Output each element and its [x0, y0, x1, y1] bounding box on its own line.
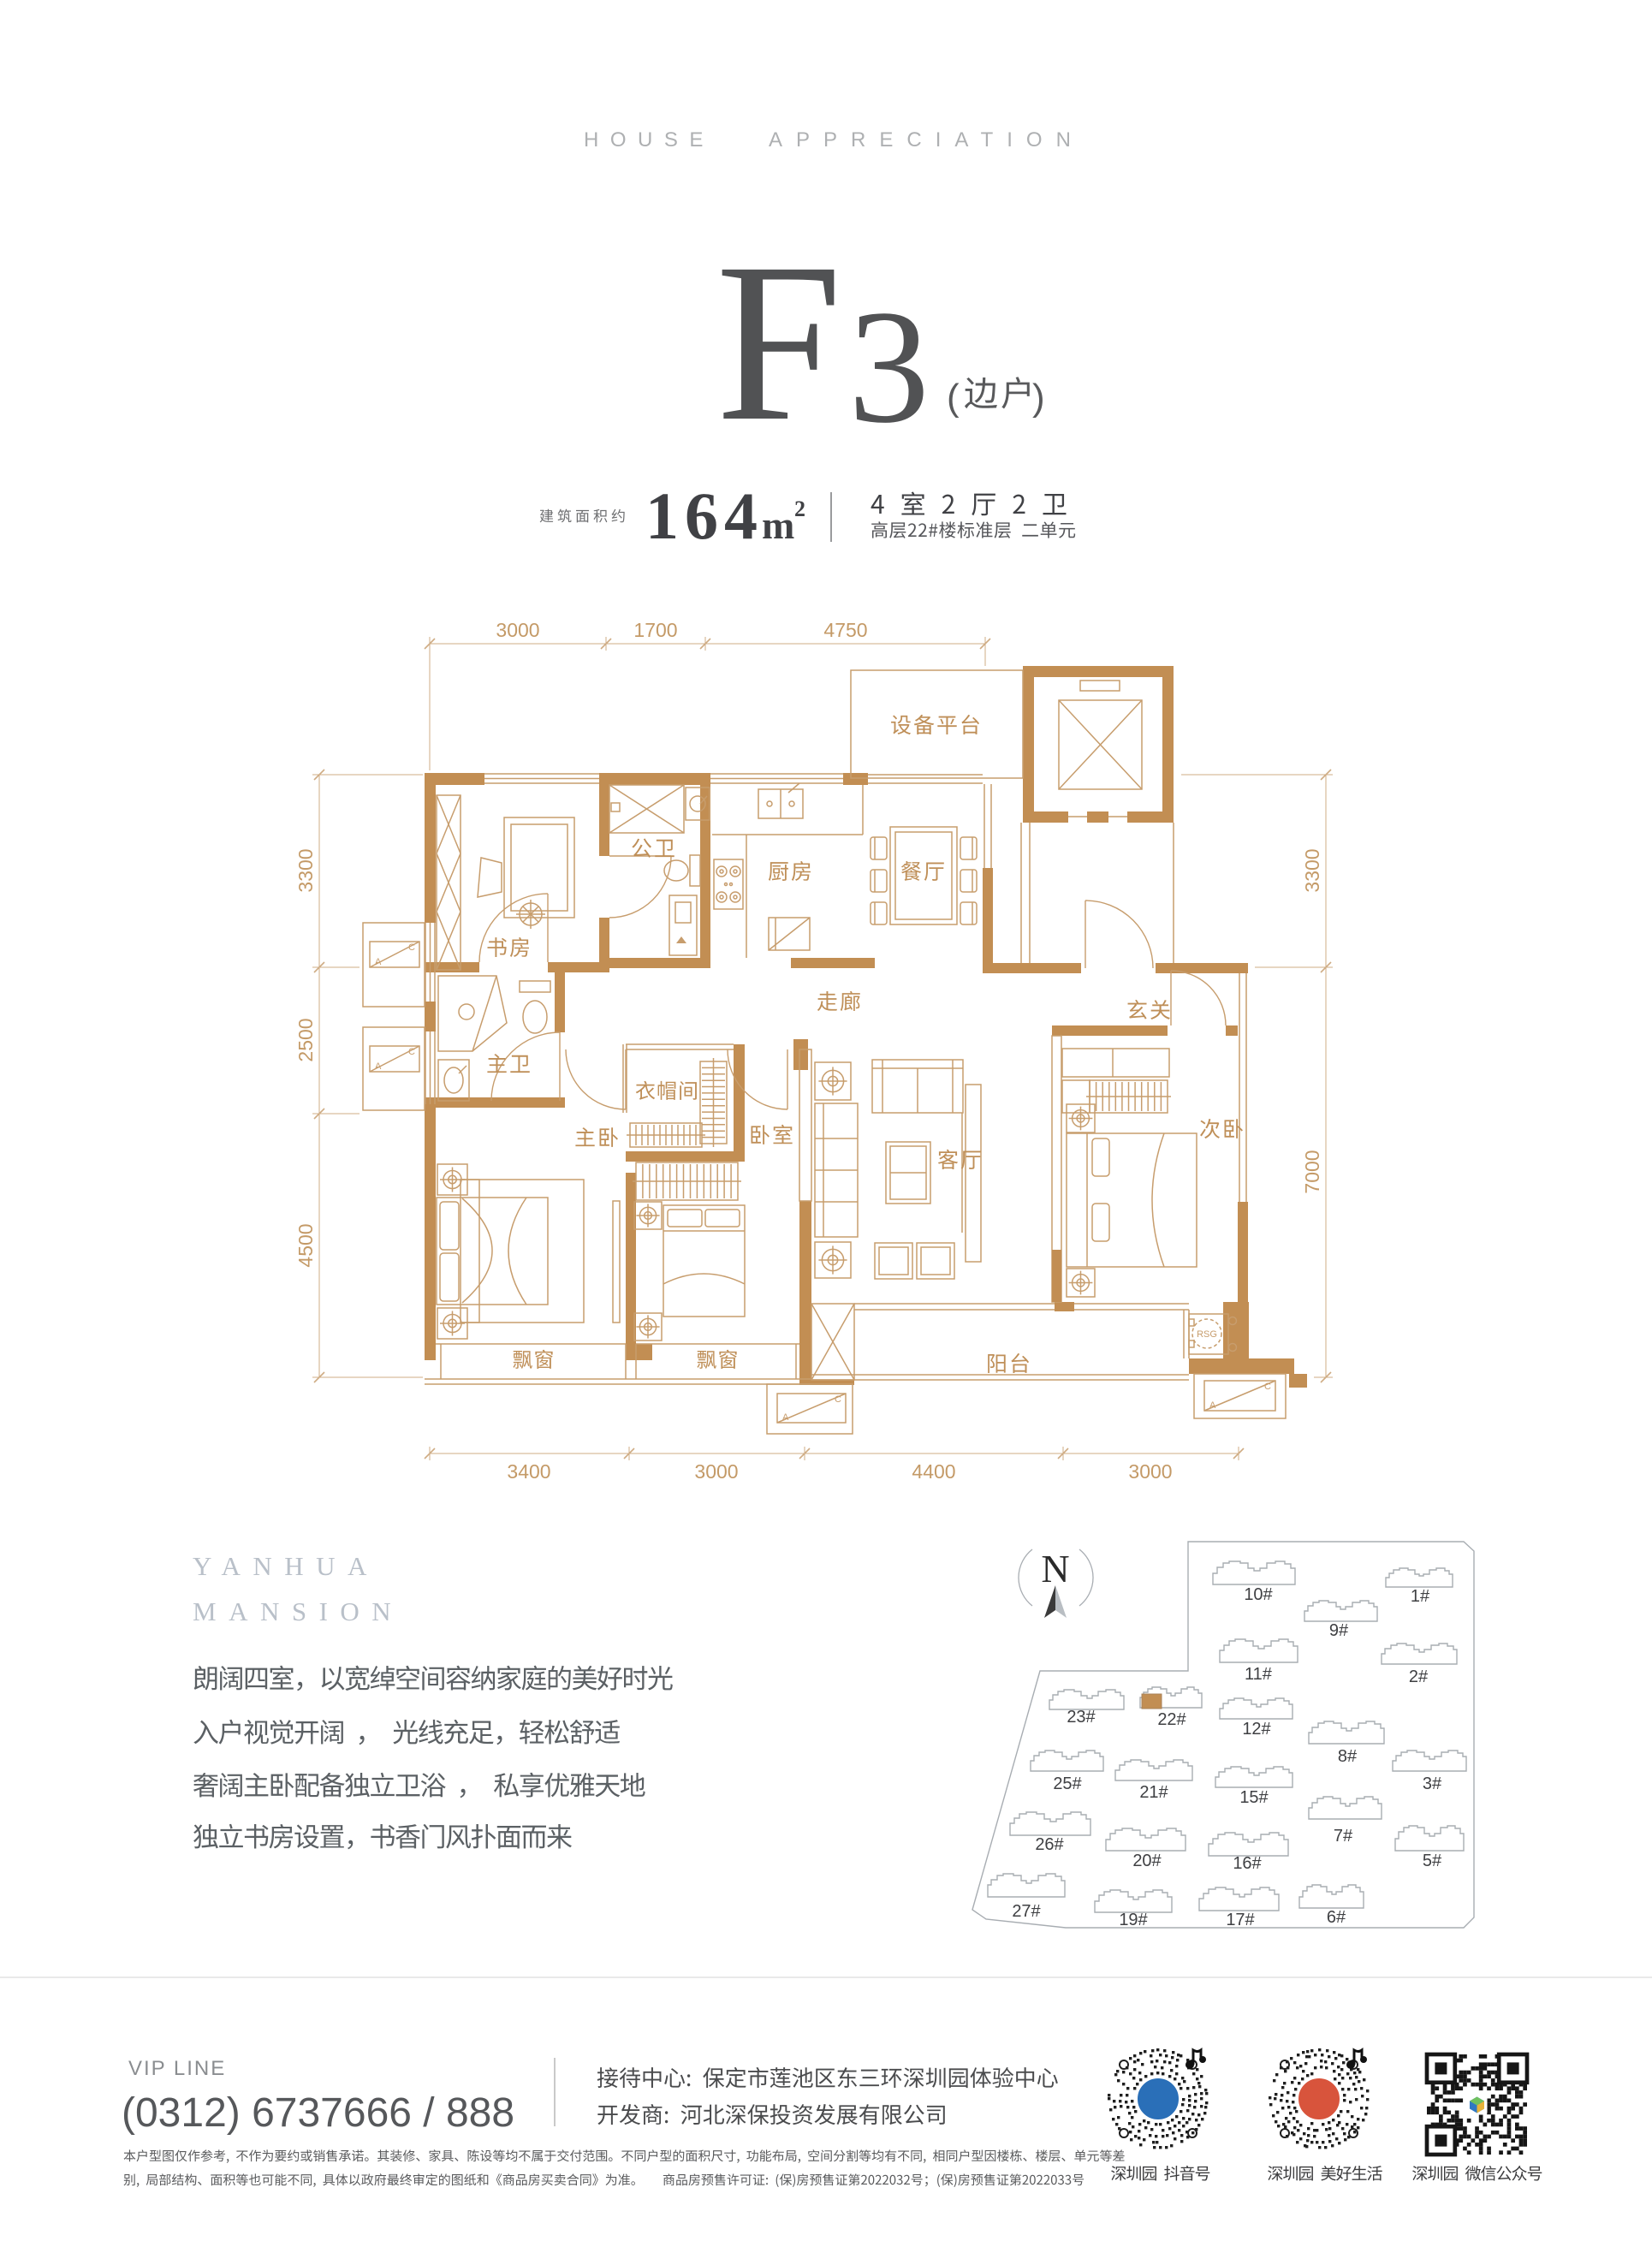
- svg-text:21#: 21#: [1139, 1783, 1168, 1802]
- svg-text:164: 164: [645, 479, 764, 553]
- svg-text:VIP LINE: VIP LINE: [128, 2057, 226, 2080]
- svg-text:3000: 3000: [1128, 1460, 1172, 1483]
- svg-text:4400: 4400: [912, 1460, 955, 1483]
- svg-text:C: C: [835, 1394, 841, 1405]
- svg-text:22#: 22#: [1157, 1710, 1186, 1729]
- svg-text:26#: 26#: [1035, 1835, 1064, 1854]
- svg-text:C: C: [408, 1047, 415, 1057]
- svg-text:17#: 17#: [1226, 1911, 1255, 1929]
- svg-text:23#: 23#: [1067, 1708, 1096, 1727]
- svg-text:7#: 7#: [1334, 1827, 1353, 1846]
- svg-text:2#: 2#: [1409, 1667, 1429, 1686]
- svg-text:A: A: [375, 957, 382, 967]
- svg-text:F: F: [716, 216, 842, 468]
- svg-text:A: A: [782, 1412, 789, 1423]
- svg-text:19#: 19#: [1119, 1911, 1148, 1929]
- svg-text:4500: 4500: [294, 1223, 317, 1267]
- svg-text:20#: 20#: [1132, 1852, 1162, 1870]
- svg-text:11#: 11#: [1245, 1665, 1273, 1684]
- svg-text:3400: 3400: [507, 1460, 550, 1483]
- svg-text:3300: 3300: [1301, 848, 1323, 892]
- svg-text:1700: 1700: [633, 619, 677, 641]
- svg-text:4750: 4750: [823, 619, 867, 641]
- svg-text:9#: 9#: [1329, 1621, 1349, 1640]
- svg-text:5#: 5#: [1423, 1852, 1442, 1870]
- svg-text:15#: 15#: [1239, 1788, 1269, 1807]
- svg-text:(0312) 6737666 / 888: (0312) 6737666 / 888: [122, 2090, 514, 2136]
- svg-text:3: 3: [848, 277, 930, 457]
- svg-text:3000: 3000: [694, 1460, 738, 1483]
- svg-text:10#: 10#: [1244, 1585, 1273, 1604]
- svg-text:APPRECIATION: APPRECIATION: [769, 128, 1084, 152]
- svg-text:RSG: RSG: [1197, 1329, 1217, 1340]
- svg-text:m: m: [762, 503, 794, 547]
- svg-text:12#: 12#: [1242, 1720, 1271, 1739]
- svg-text:1#: 1#: [1411, 1587, 1430, 1606]
- svg-text:A: A: [375, 1061, 382, 1072]
- svg-text:C: C: [1264, 1382, 1271, 1392]
- svg-text:16#: 16#: [1233, 1854, 1262, 1873]
- svg-text:C: C: [408, 942, 415, 953]
- svg-text:N: N: [1041, 1547, 1069, 1590]
- svg-text:): ): [1032, 377, 1045, 419]
- svg-text:6#: 6#: [1327, 1908, 1346, 1927]
- svg-text:3#: 3#: [1423, 1774, 1442, 1793]
- svg-text:HOUSE: HOUSE: [584, 128, 715, 152]
- svg-text:(: (: [947, 377, 960, 419]
- svg-text:3300: 3300: [294, 848, 317, 892]
- svg-text:8#: 8#: [1338, 1747, 1358, 1766]
- svg-text:7000: 7000: [1301, 1150, 1323, 1193]
- svg-text:YANHUA: YANHUA: [193, 1551, 379, 1581]
- svg-text:3000: 3000: [496, 619, 539, 641]
- svg-text:27#: 27#: [1012, 1902, 1041, 1921]
- svg-text:2500: 2500: [294, 1018, 317, 1061]
- svg-text:A: A: [1209, 1400, 1216, 1411]
- svg-text:MANSION: MANSION: [193, 1596, 403, 1626]
- svg-text:2: 2: [794, 496, 805, 521]
- svg-text:25#: 25#: [1053, 1774, 1082, 1793]
